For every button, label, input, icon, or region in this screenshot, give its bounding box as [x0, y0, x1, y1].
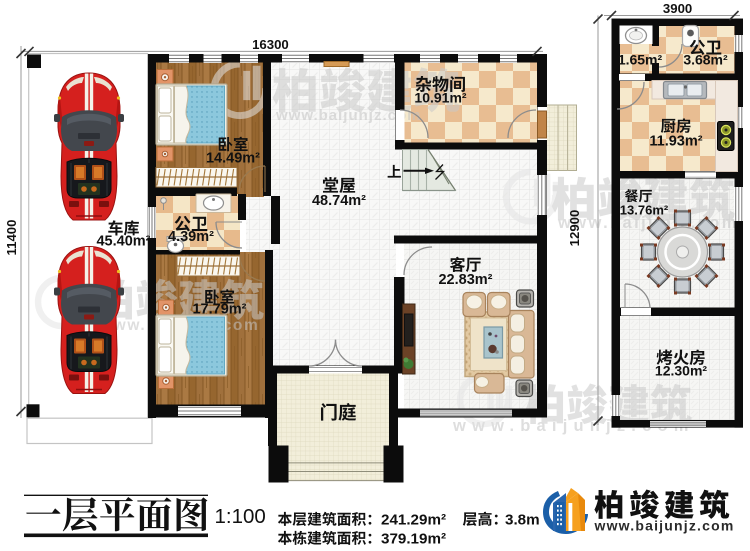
svg-text:3.68m²: 3.68m²: [683, 52, 728, 68]
svg-text:14.49m²: 14.49m²: [206, 151, 260, 167]
svg-text:4.39m²: 4.39m²: [168, 229, 214, 245]
svg-text:48.74m²: 48.74m²: [312, 193, 366, 209]
svg-text:1.65m²: 1.65m²: [618, 52, 663, 68]
svg-text:22.83m²: 22.83m²: [438, 272, 492, 288]
svg-text:10.91m²: 10.91m²: [414, 90, 466, 106]
svg-text:379.19m²: 379.19m²: [381, 531, 446, 548]
svg-text:12900: 12900: [567, 210, 582, 247]
svg-text:3.8m: 3.8m: [505, 512, 540, 529]
svg-text:1:100: 1:100: [215, 505, 266, 528]
svg-text:13.76m²: 13.76m²: [620, 203, 669, 218]
svg-text:241.29m²: 241.29m²: [381, 512, 446, 529]
svg-text:11.93m²: 11.93m²: [649, 134, 702, 150]
svg-text:11400: 11400: [4, 220, 19, 256]
svg-text:45.40m²: 45.40m²: [96, 234, 150, 250]
svg-text:www.baijunjz.com: www.baijunjz.com: [594, 518, 735, 534]
svg-text:17.79m²: 17.79m²: [192, 302, 246, 318]
svg-text:16300: 16300: [252, 37, 289, 52]
svg-text:12.30m²: 12.30m²: [655, 363, 707, 379]
svg-text:3900: 3900: [663, 1, 692, 16]
